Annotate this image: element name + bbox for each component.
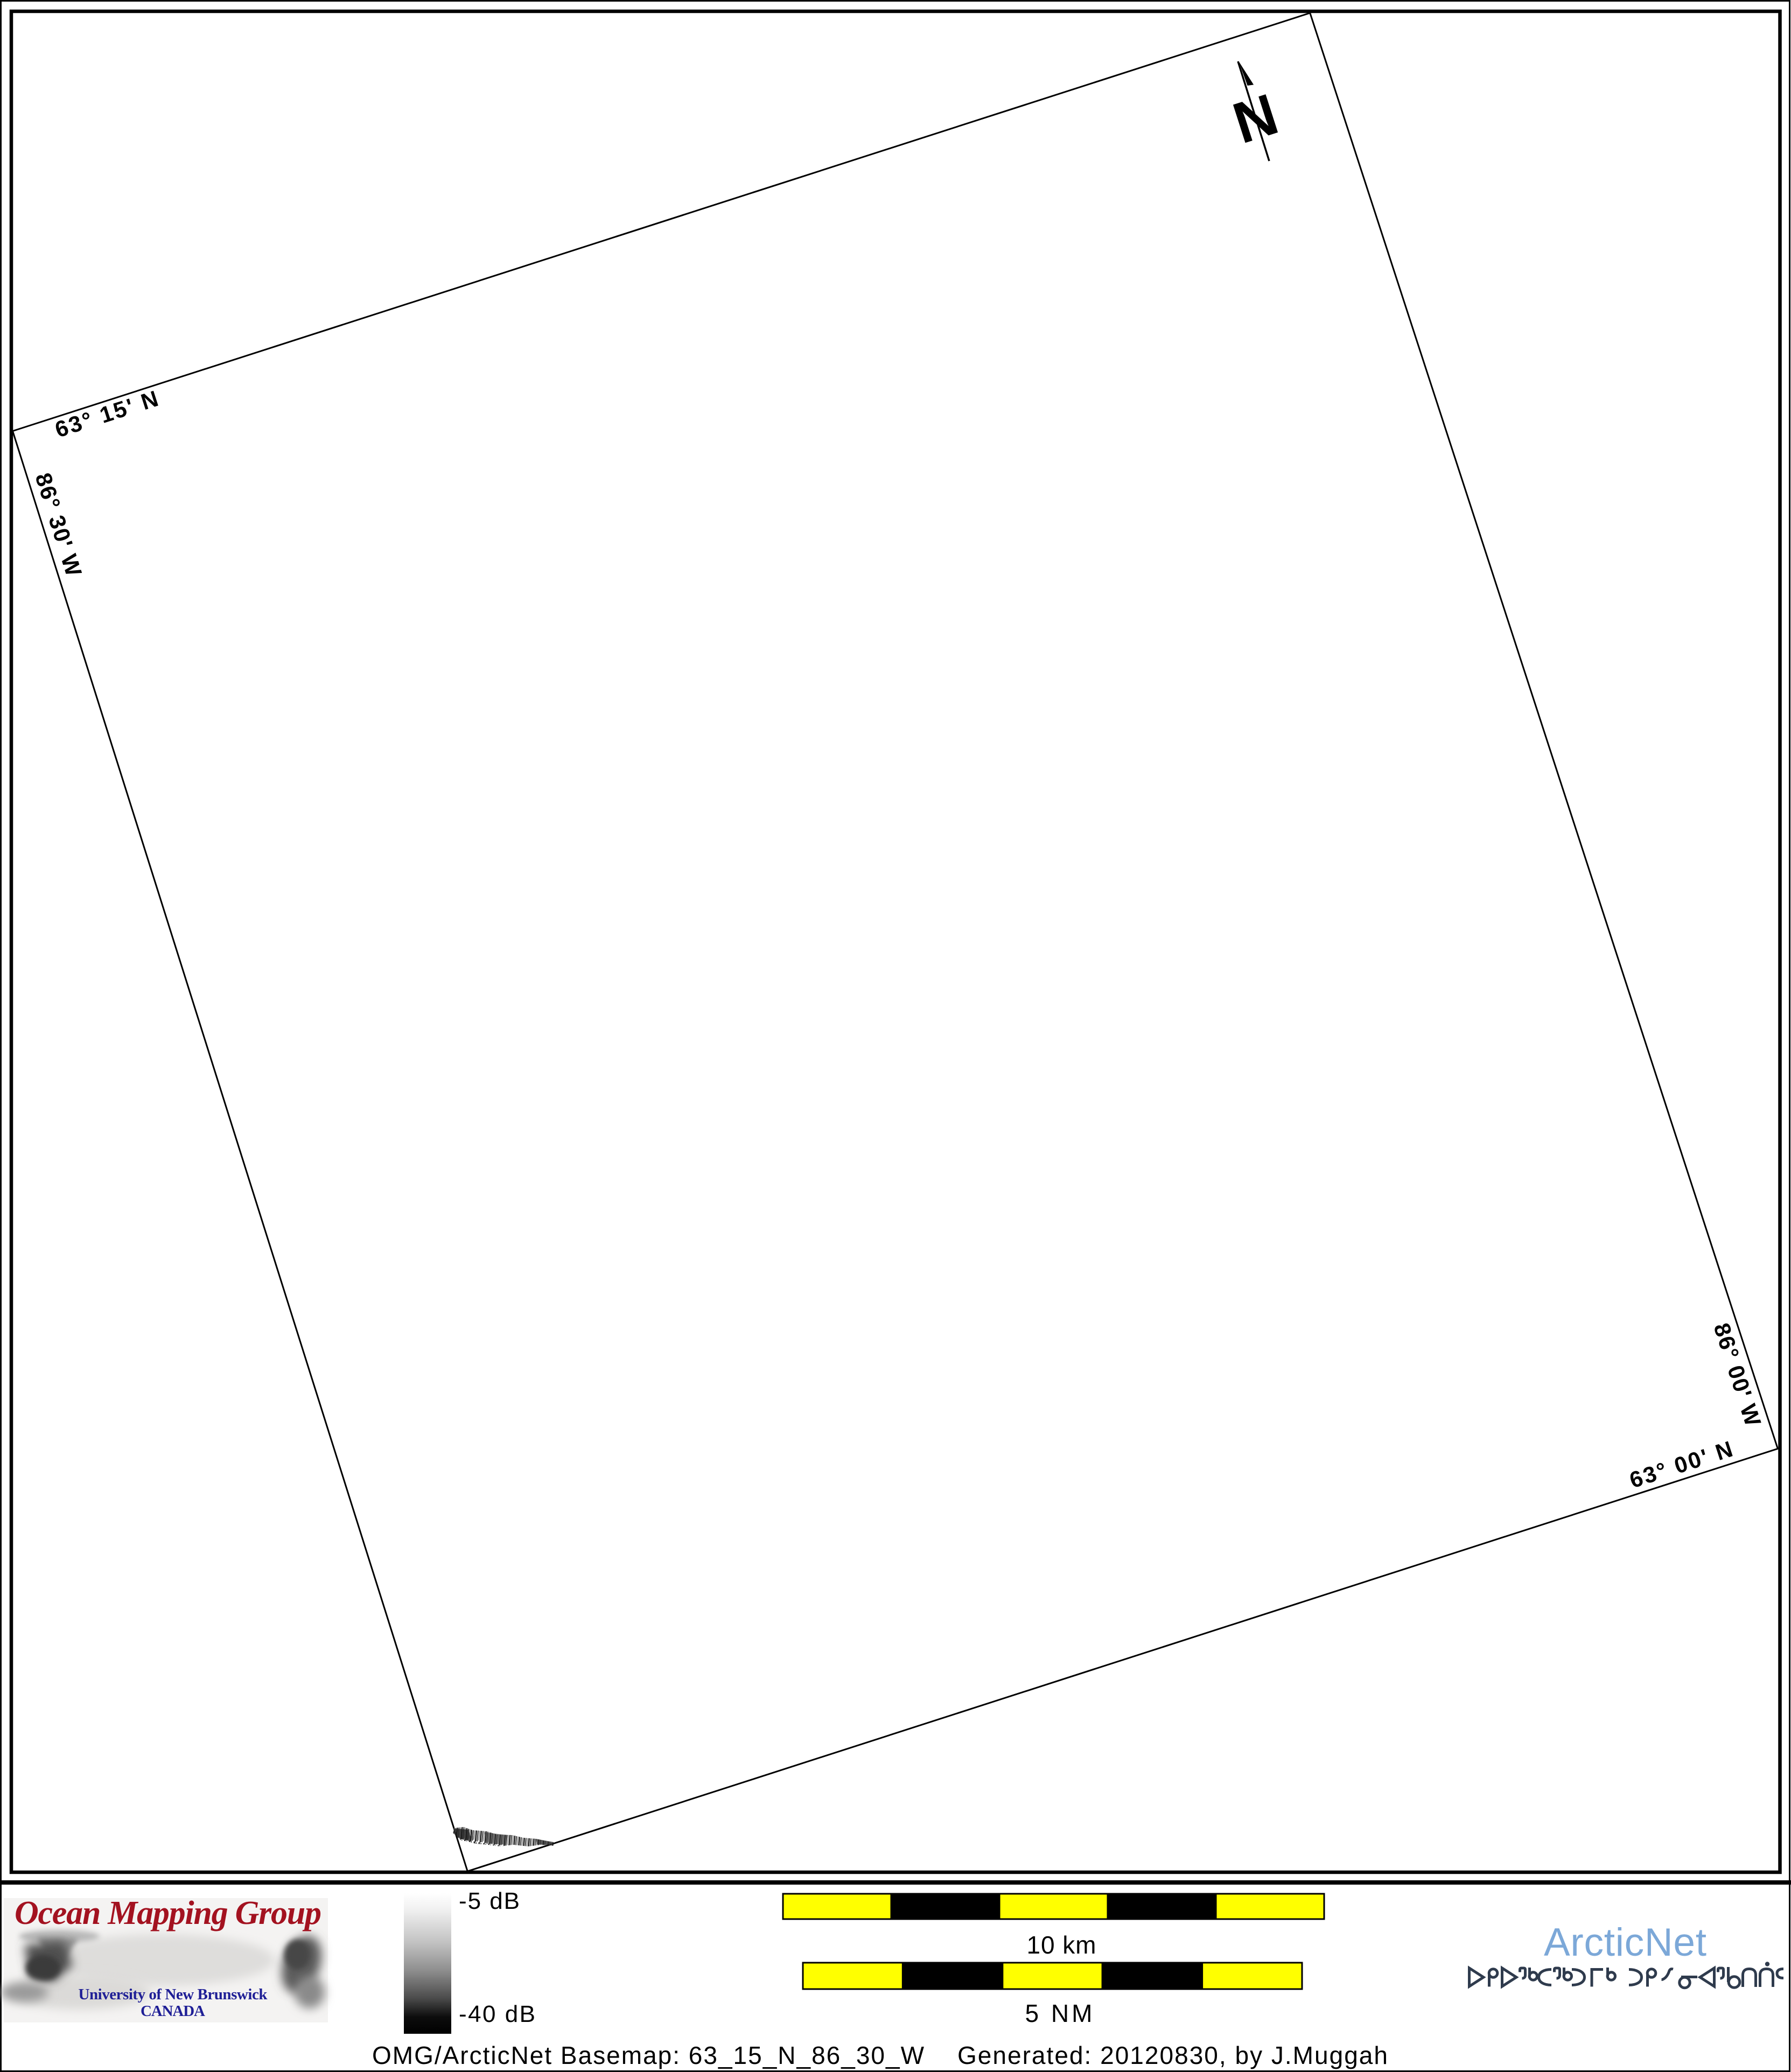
svg-text:ArcticNet: ArcticNet <box>1544 1921 1706 1964</box>
svg-text:10 km: 10 km <box>1027 1931 1096 1959</box>
svg-text:OMG/ArcticNet Basemap: 63_15_N: OMG/ArcticNet Basemap: 63_15_N_86_30_W <box>372 2041 925 2069</box>
svg-text:Generated: 20120830, by J.Mugg: Generated: 20120830, by J.Muggah <box>957 2041 1388 2069</box>
svg-text:CANADA: CANADA <box>141 2003 205 2020</box>
svg-text:University of New Brunswick: University of New Brunswick <box>79 1986 268 2003</box>
svg-text:-5 dB: -5 dB <box>459 1888 520 1914</box>
svg-text:5 NM: 5 NM <box>1025 1999 1093 2027</box>
svg-text:-40 dB: -40 dB <box>459 2001 535 2027</box>
svg-text:Ocean Mapping Group: Ocean Mapping Group <box>15 1895 321 1931</box>
